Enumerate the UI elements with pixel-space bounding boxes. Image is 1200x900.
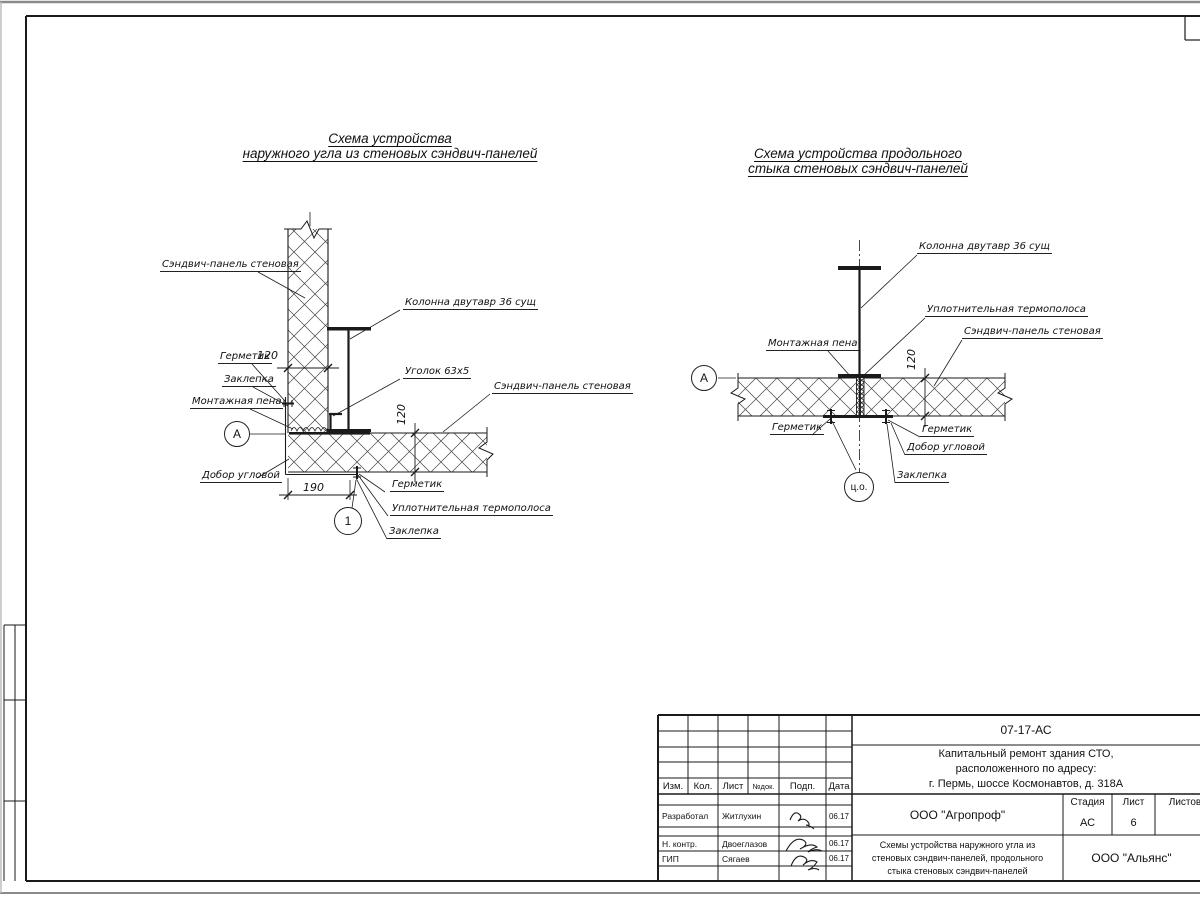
row-date-1: 06.17 [826, 805, 852, 827]
label-corner-trim-right: Добор угловой [905, 442, 987, 455]
label-corner-trim: Добор угловой [200, 470, 282, 483]
row-role-nkontr: Н. контр. [658, 836, 718, 851]
marker-center-axis: ц.о. [844, 472, 874, 502]
dim-120-right: 120 [905, 349, 918, 370]
org-name: ООО "Агропроф" [852, 794, 1063, 835]
label-rivet-right: Заклепка [895, 470, 949, 483]
col-header-izm: Изм. [658, 778, 688, 794]
right-title-line1: Схема устройства продольного [754, 146, 962, 161]
label-thermal-strip: Уплотнительная термополоса [390, 503, 553, 516]
label-sealant-2: Герметик [390, 479, 444, 492]
marker-a-right: А [691, 365, 717, 391]
label-thermal-strip-right: Уплотнительная термополоса [925, 304, 1088, 317]
dim-120-wall: 120 [257, 349, 278, 362]
signature-gip [791, 856, 819, 870]
label-sealant-right-2: Герметик [920, 424, 974, 437]
label-rivet-2: Заклепка [387, 526, 441, 539]
col-header-kol: Кол. [688, 778, 718, 794]
sheets-header: Листов [1155, 794, 1200, 810]
marker-a-left: А [224, 421, 250, 447]
company-name: ООО "Альянс" [1063, 835, 1200, 881]
row-role-razrabotal: Разработал [658, 805, 718, 827]
label-rivet: Заклепка [222, 374, 276, 387]
left-diagram-title: Схема устройства наружного угла из стено… [190, 131, 590, 161]
col-header-podp: Подп. [779, 778, 826, 794]
drawing-code: 07-17-АС [852, 715, 1200, 745]
col-header-ndok: №док. [748, 778, 779, 794]
project-line1: Капитальный ремонт здания СТО, [852, 747, 1200, 762]
label-sandwich-panel-2: Сэндвич-панель стеновая [492, 381, 633, 394]
stage-value: АС [1063, 810, 1112, 835]
doc-name: Схемы устройства наружного угла из стено… [852, 835, 1063, 881]
sheet-value: 6 [1112, 810, 1155, 835]
right-title-line2: стыка стеновых сэндвич-панелей [748, 161, 968, 176]
dim-120-panel: 120 [395, 404, 408, 425]
dim-190: 190 [303, 481, 324, 494]
doc-line2: стеновых сэндвич-панелей, продольного [852, 852, 1063, 865]
row-role-gip: ГИП [658, 851, 718, 866]
signature-nkontr [786, 839, 822, 852]
col-header-list: Лист [718, 778, 748, 794]
signatures [786, 813, 822, 870]
label-foam-right: Монтажная пена [766, 338, 859, 351]
right-diagram-title: Схема устройства продольного стыка стено… [708, 146, 1008, 176]
doc-line1: Схемы устройства наружного угла из [852, 839, 1063, 852]
label-sandwich-panel-right: Сэндвич-панель стеновая [962, 326, 1103, 339]
project-name: Капитальный ремонт здания СТО, расположе… [852, 745, 1200, 794]
row-name-zhitlukhin: Житлухин [718, 805, 779, 827]
project-line2: расположенного по адресу: [852, 762, 1200, 777]
label-angle: Уголок 63х5 [403, 366, 471, 379]
col-header-data: Дата [826, 778, 852, 794]
label-sealant-right-1: Герметик [770, 422, 824, 435]
sheet-header: Лист [1112, 794, 1155, 810]
row-date-2: 06.17 [826, 836, 852, 851]
doc-line3: стыка стеновых сэндвич-панелей [852, 865, 1063, 878]
label-column-beam-right: Колонна двутавр 36 сущ [917, 241, 1052, 254]
row-name-dvoeglazov: Двоеглазов [718, 836, 779, 851]
left-title-line2: наружного угла из стеновых сэндвич-панел… [243, 146, 538, 161]
label-column-beam: Колонна двутавр 36 сущ [403, 297, 538, 310]
label-foam: Монтажная пена [190, 396, 283, 409]
row-date-3: 06.17 [826, 851, 852, 866]
stage-header: Стадия [1063, 794, 1112, 810]
drawing-sheet: Схема устройства наружного угла из стено… [0, 0, 1200, 900]
marker-node-1: 1 [334, 507, 362, 535]
left-title-line1: Схема устройства [328, 131, 452, 146]
label-sandwich-panel: Сэндвич-панель стеновая [160, 259, 301, 272]
row-name-syagaev: Сягаев [718, 851, 779, 866]
project-line3: г. Пермь, шоссе Космонавтов, д. 318А [852, 777, 1200, 792]
